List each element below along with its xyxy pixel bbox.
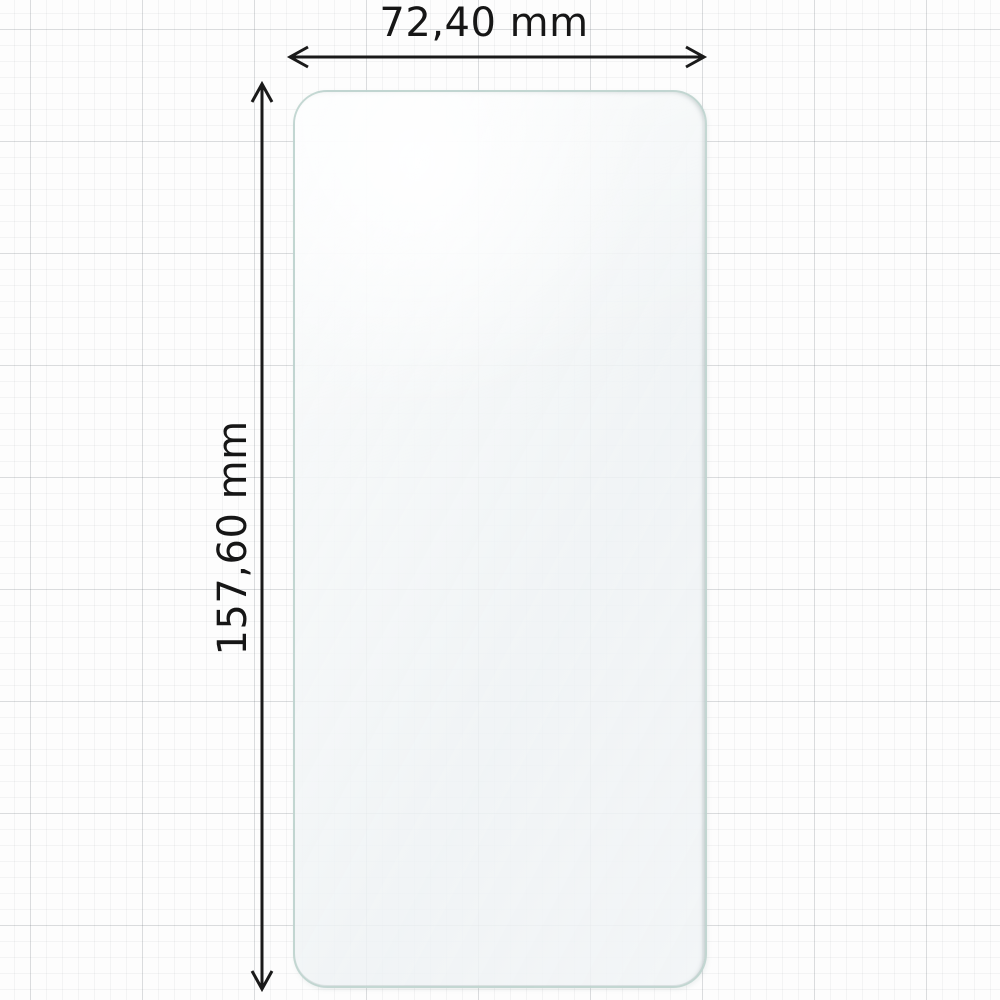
width-dimension-label: 72,40 mm bbox=[284, 0, 684, 46]
height-dimension-arrow bbox=[248, 79, 276, 994]
screen-protector bbox=[293, 90, 707, 988]
protector-sheen bbox=[295, 92, 705, 986]
width-dimension-arrow bbox=[286, 43, 708, 71]
graph-paper-background: 72,40 mm 157,60 mm bbox=[0, 0, 1000, 1000]
